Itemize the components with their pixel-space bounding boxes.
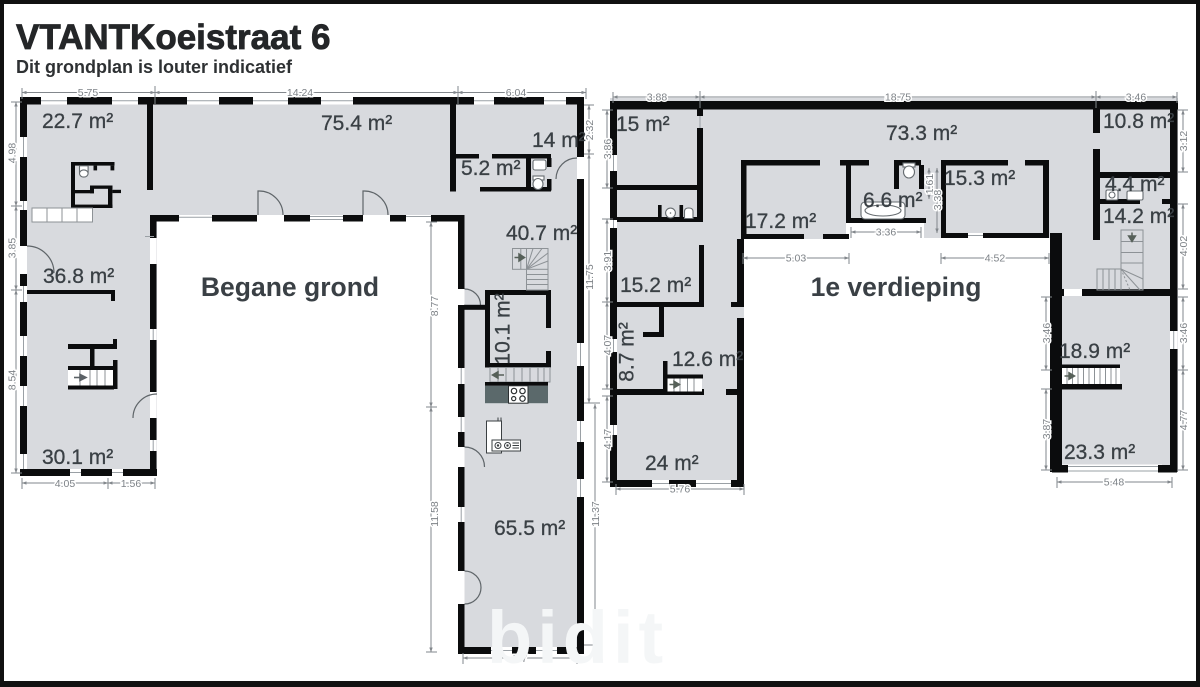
svg-text:3.38: 3.38 <box>932 190 944 211</box>
svg-text:5.76: 5.76 <box>670 484 691 496</box>
svg-text:6.04: 6.04 <box>506 87 527 99</box>
svg-text:4.07: 4.07 <box>602 335 614 356</box>
svg-text:8.77: 8.77 <box>429 296 441 317</box>
svg-text:Dit grondplan is louter indica: Dit grondplan is louter indicatief <box>16 57 293 77</box>
svg-text:3.36: 3.36 <box>876 227 897 239</box>
svg-text:5.48: 5.48 <box>1104 477 1125 489</box>
svg-text:23.3 m²: 23.3 m² <box>1064 441 1135 464</box>
svg-text:10.8 m²: 10.8 m² <box>1103 110 1174 133</box>
svg-text:11.75: 11.75 <box>584 264 596 290</box>
svg-text:VTANTKoeistraat 6: VTANTKoeistraat 6 <box>16 18 330 57</box>
svg-text:2.32: 2.32 <box>584 120 596 141</box>
svg-text:1.56: 1.56 <box>121 478 142 490</box>
svg-text:14.2 m²: 14.2 m² <box>1103 205 1174 228</box>
svg-text:4.98: 4.98 <box>7 143 19 164</box>
svg-text:10.1 m²: 10.1 m² <box>492 293 515 364</box>
svg-text:4.17: 4.17 <box>602 429 614 450</box>
svg-text:8.54: 8.54 <box>7 370 19 391</box>
svg-text:24 m²: 24 m² <box>645 452 699 475</box>
svg-text:75.4 m²: 75.4 m² <box>321 112 392 135</box>
svg-text:bidit: bidit <box>487 596 668 679</box>
svg-text:4.52: 4.52 <box>985 253 1006 265</box>
svg-text:Begane grond: Begane grond <box>201 272 379 302</box>
svg-text:4.4 m²: 4.4 m² <box>1105 173 1165 196</box>
svg-text:5.03: 5.03 <box>786 253 807 265</box>
svg-text:3.46: 3.46 <box>1126 92 1147 104</box>
svg-text:30.1 m²: 30.1 m² <box>42 446 113 469</box>
svg-text:36.8 m²: 36.8 m² <box>43 265 114 288</box>
svg-text:6.6 m²: 6.6 m² <box>863 189 923 212</box>
svg-text:3.12: 3.12 <box>1178 131 1190 152</box>
svg-text:5.2 m²: 5.2 m² <box>461 157 521 180</box>
svg-text:14 m²: 14 m² <box>532 129 586 152</box>
svg-text:15 m²: 15 m² <box>616 113 670 136</box>
svg-text:1e verdieping: 1e verdieping <box>811 272 982 302</box>
svg-text:4.02: 4.02 <box>1178 236 1190 257</box>
svg-text:5.75: 5.75 <box>78 87 99 99</box>
svg-text:4.77: 4.77 <box>1178 410 1190 431</box>
svg-text:3.85: 3.85 <box>7 238 19 259</box>
svg-text:11.37: 11.37 <box>590 501 602 527</box>
svg-text:3.86: 3.86 <box>602 139 614 160</box>
svg-text:18.9 m²: 18.9 m² <box>1059 340 1130 363</box>
svg-text:18.75: 18.75 <box>885 92 911 104</box>
svg-text:17.2 m²: 17.2 m² <box>745 210 816 233</box>
svg-text:3.87: 3.87 <box>1041 419 1053 440</box>
svg-text:3.46: 3.46 <box>1178 323 1190 344</box>
svg-text:3.88: 3.88 <box>647 92 668 104</box>
svg-text:8.7 m²: 8.7 m² <box>616 322 639 382</box>
svg-text:73.3 m²: 73.3 m² <box>886 122 957 145</box>
svg-text:3.46: 3.46 <box>1041 323 1053 344</box>
svg-text:11.58: 11.58 <box>429 501 441 527</box>
svg-text:3.91: 3.91 <box>602 251 614 272</box>
svg-text:15.3 m²: 15.3 m² <box>944 167 1015 190</box>
svg-text:22.7 m²: 22.7 m² <box>42 110 113 133</box>
svg-text:14.24: 14.24 <box>287 87 313 99</box>
svg-text:65.5 m²: 65.5 m² <box>494 517 565 540</box>
svg-text:15.2 m²: 15.2 m² <box>620 274 691 297</box>
svg-text:40.7 m²: 40.7 m² <box>506 222 577 245</box>
svg-text:12.6 m²: 12.6 m² <box>672 348 743 371</box>
svg-text:4.05: 4.05 <box>55 478 76 490</box>
